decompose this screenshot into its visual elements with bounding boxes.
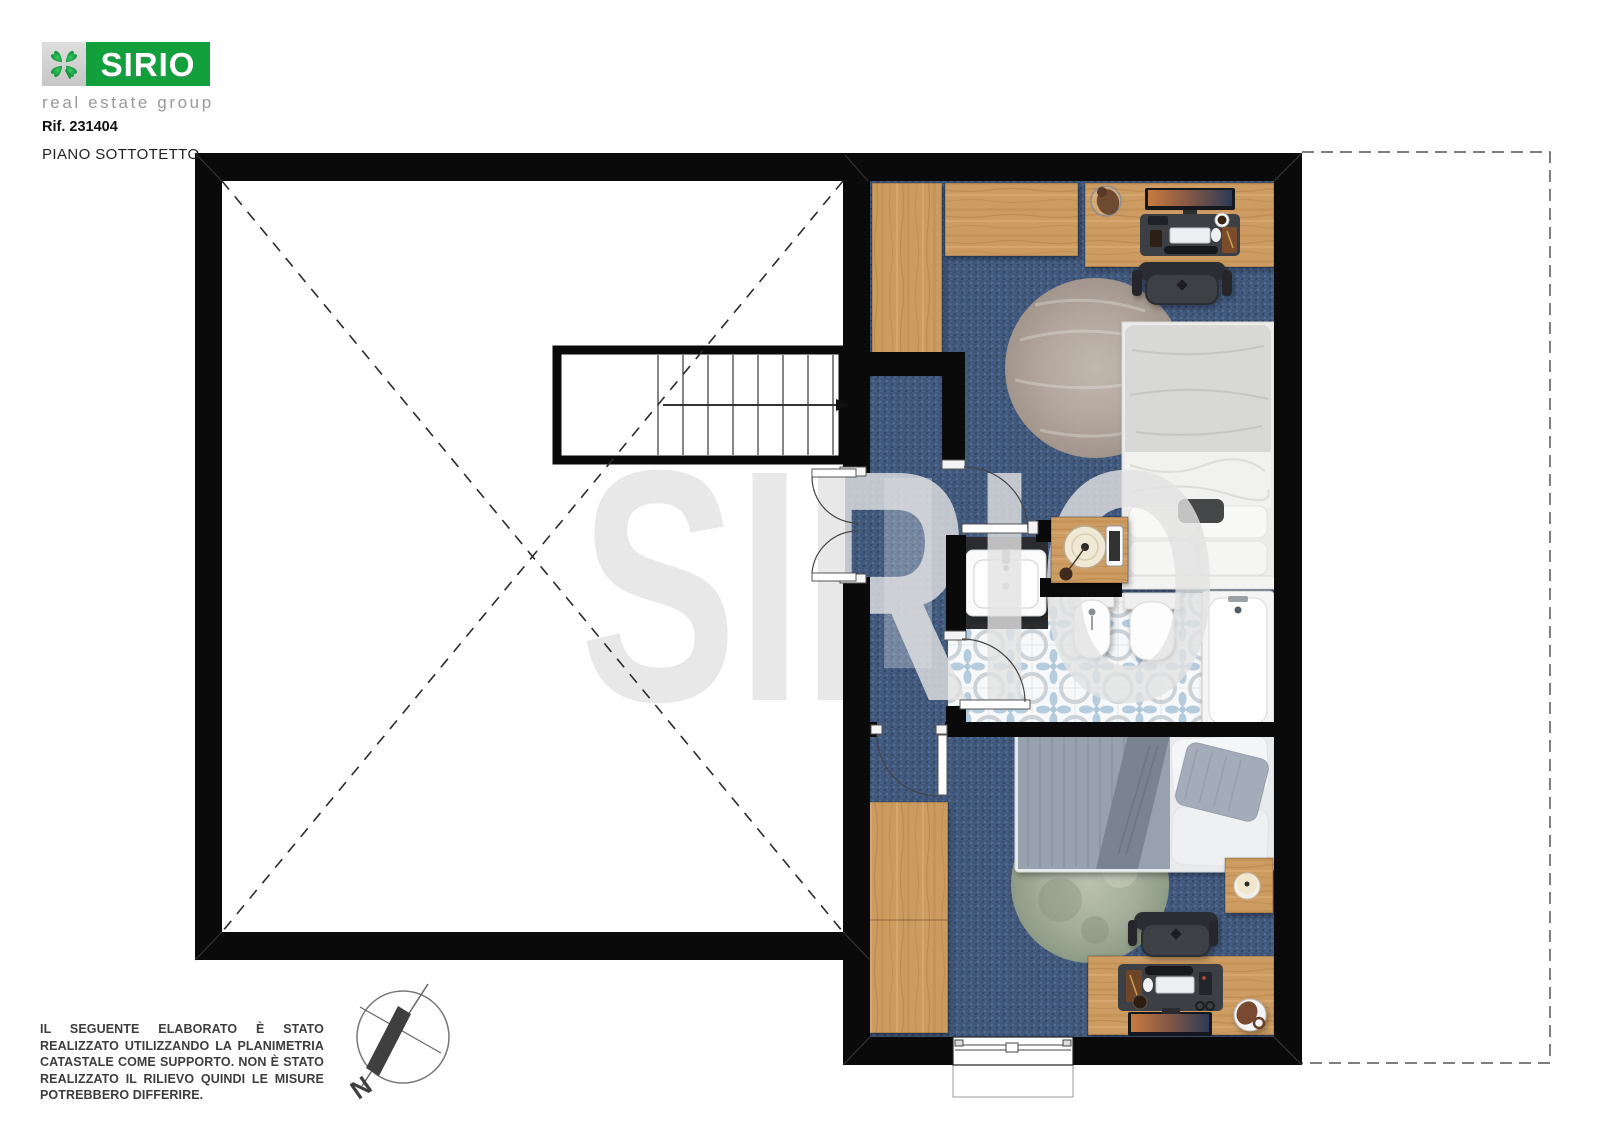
compass-north-label: N — [345, 1070, 378, 1105]
wall-left — [195, 153, 222, 960]
phone-on-mat — [1148, 216, 1168, 225]
floorplan-page: SIRIO — [0, 0, 1600, 1131]
adjacent-area-dashed-boundary — [1302, 152, 1550, 1063]
door-leaf — [812, 469, 856, 477]
keyboard-top — [1170, 228, 1210, 243]
vase-neck — [1097, 187, 1107, 197]
logo-name-box: SIRIO — [86, 42, 210, 86]
floor-label: PIANO SOTTOTETTO — [42, 146, 200, 163]
window-bottom — [953, 1037, 1073, 1097]
lamp-switch — [1060, 568, 1073, 581]
keyboard-bottom — [1156, 977, 1194, 993]
coffee-top — [1218, 216, 1227, 225]
mouse-top — [1211, 228, 1221, 242]
compass-rose-icon: N — [345, 984, 449, 1105]
wardrobe-bottom — [868, 802, 948, 1033]
wall-bath-left-upper — [946, 535, 966, 640]
door-leaf — [812, 573, 856, 581]
brand-logo: SIRIO real estate group — [42, 42, 214, 113]
door-leaf — [962, 524, 1036, 533]
monitor-bottom-screen — [1131, 1014, 1209, 1032]
coffee-bottom — [1133, 995, 1147, 1009]
desk-bottom — [1088, 956, 1274, 1036]
wardrobe-top — [872, 183, 942, 353]
monitor-bottom-stand — [1162, 1008, 1180, 1014]
wall-right — [1274, 153, 1302, 1065]
nightstand-top — [1051, 517, 1128, 583]
floorplan-drawing: SIRIO — [0, 0, 1600, 1131]
staircase — [557, 350, 850, 460]
compass-needle — [366, 1006, 411, 1076]
door-leaf — [960, 700, 1030, 709]
wrist-rest — [1164, 246, 1218, 254]
tub-faucet — [1228, 596, 1248, 602]
reference-number: Rif. 231404 — [42, 119, 118, 135]
logo-clover-box — [42, 42, 86, 86]
wall-bath-bottom — [945, 722, 1274, 737]
wall-nook-vertical — [942, 352, 965, 467]
window-latch — [1006, 1043, 1018, 1052]
logo-tagline: real estate group — [42, 93, 214, 113]
clover-icon — [44, 44, 84, 84]
soundbar — [1145, 966, 1193, 975]
phone-bottom — [1199, 972, 1212, 995]
logo-name: SIRIO — [101, 48, 196, 81]
wall-bottom-left-room — [195, 932, 870, 960]
door-leaf — [938, 735, 947, 795]
nightstand-bottom — [1225, 858, 1273, 913]
mouse-bottom — [1143, 978, 1153, 992]
remote — [1150, 230, 1162, 247]
disclaimer-text: IL SEGUENTE ELABORATO È STATO REALIZZATO… — [40, 1021, 324, 1104]
wall-top — [195, 153, 1302, 181]
wall-middle-lower — [843, 577, 870, 1065]
office-chair-top — [1132, 262, 1232, 304]
monitor-top-screen — [1148, 190, 1232, 206]
shelf-top — [945, 183, 1078, 256]
